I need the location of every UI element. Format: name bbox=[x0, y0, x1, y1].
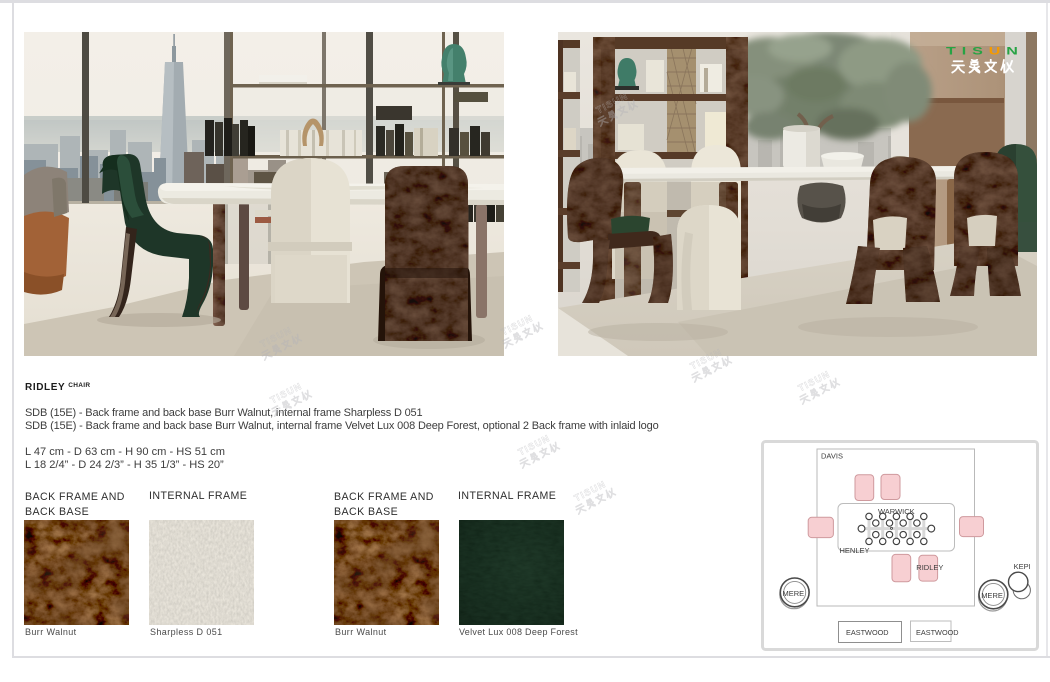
svg-text:KEPI: KEPI bbox=[1014, 562, 1031, 571]
svg-text:MERE: MERE bbox=[783, 589, 805, 598]
svg-text:EASTWOOD: EASTWOOD bbox=[846, 628, 889, 637]
svg-text:TISUN: TISUN bbox=[797, 369, 833, 394]
svg-text:TISUN: TISUN bbox=[269, 381, 305, 406]
svg-text:EASTWOOD: EASTWOOD bbox=[916, 628, 959, 637]
svg-text:TISUN: TISUN bbox=[573, 479, 609, 504]
svg-text:MERE: MERE bbox=[981, 591, 1003, 600]
svg-text:HENLEY: HENLEY bbox=[840, 546, 870, 555]
svg-text:TISUN: TISUN bbox=[500, 313, 536, 338]
svg-text:RIDLEY: RIDLEY bbox=[916, 563, 943, 572]
svg-text:TISUN: TISUN bbox=[517, 433, 553, 458]
svg-text:DAVIS: DAVIS bbox=[821, 452, 843, 461]
